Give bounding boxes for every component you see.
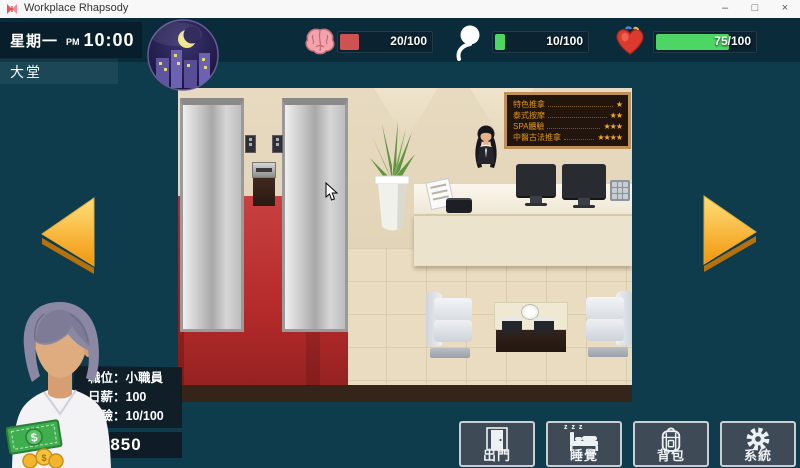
- coffee-table-base: [496, 330, 566, 352]
- desk-telephone: [610, 180, 630, 201]
- spirit-stat-bar: 10/100: [492, 31, 589, 53]
- spirit-stat-value: 10/100: [546, 34, 583, 48]
- bed-icon: [568, 431, 600, 451]
- menu-item: SPA體驗 ★★★: [513, 121, 622, 132]
- backpack-button[interactable]: 背包: [633, 421, 709, 467]
- location-box: 大堂: [0, 59, 118, 84]
- star-rating: ★★★: [603, 122, 622, 132]
- door-icon: [484, 426, 510, 452]
- clock-label: 10:00: [84, 30, 135, 51]
- svg-text:$: $: [41, 453, 46, 463]
- maximize-button[interactable]: □: [740, 0, 770, 18]
- money-icon: $ $: [6, 418, 70, 468]
- lobby-scene: 特色推拿 ★ 泰式按摩 ★★ SPA體驗 ★★★ 中醫古法推拿 ★★★★: [178, 88, 632, 402]
- minimize-button[interactable]: –: [710, 0, 740, 18]
- star-rating: ★: [616, 100, 622, 110]
- trash-bin-icon: [252, 162, 276, 178]
- go-out-button[interactable]: 出門: [459, 421, 535, 467]
- gear-icon: [745, 426, 771, 452]
- brain-stat-fill: [340, 34, 359, 50]
- trash-bin: [253, 178, 275, 206]
- close-button[interactable]: ×: [770, 0, 800, 18]
- brain-stat-bar: 20/100: [337, 31, 433, 53]
- window-titlebar: Workplace Rhapsody – □ ×: [0, 0, 800, 19]
- desk-monitor: [516, 164, 556, 198]
- floor-baseboard: [178, 385, 632, 402]
- brain-stat-value: 20/100: [390, 34, 427, 48]
- tissue-tray: [534, 318, 554, 333]
- spirit-stat-fill: [495, 34, 505, 50]
- heart-icon: [613, 26, 647, 56]
- menu-item: 特色推拿 ★: [513, 99, 622, 110]
- health-stat-value: 75/100: [714, 34, 751, 48]
- brain-icon: [302, 26, 338, 56]
- game-window: Workplace Rhapsody – □ × 星期一 PM 10:00 大堂: [0, 0, 800, 468]
- service-menu-board: 特色推拿 ★ 泰式按摩 ★★ SPA體驗 ★★★ 中醫古法推拿 ★★★★: [504, 92, 631, 149]
- window-title: Workplace Rhapsody: [24, 2, 128, 14]
- nav-left-arrow[interactable]: [34, 196, 96, 276]
- desk-tray: [446, 198, 472, 213]
- spirit-icon: [450, 24, 482, 62]
- menu-item: 中醫古法推拿 ★★★★: [513, 132, 622, 143]
- app-butterfly-icon: [6, 3, 18, 15]
- elevator-left[interactable]: [180, 98, 244, 332]
- elevator-call-panel[interactable]: [272, 135, 283, 153]
- armchair-right: [584, 291, 632, 357]
- mouse-cursor: [325, 182, 339, 202]
- nav-right-arrow[interactable]: [702, 194, 764, 274]
- health-stat-bar: 75/100: [653, 31, 757, 53]
- potted-plant: [368, 118, 416, 236]
- desk-monitor: [562, 164, 606, 200]
- location-label: 大堂: [10, 62, 42, 82]
- night-moon-icon: [146, 18, 220, 92]
- sleep-button[interactable]: z z z 睡覺: [546, 421, 622, 467]
- day-label: 星期一: [10, 30, 58, 51]
- receptionist[interactable]: [470, 124, 502, 186]
- meridiem-label: PM: [66, 37, 80, 47]
- tissue-tray: [502, 318, 522, 333]
- menu-item: 泰式按摩 ★★: [513, 110, 622, 121]
- backpack-icon: [658, 426, 684, 453]
- system-button[interactable]: 系統: [720, 421, 796, 467]
- time-panel: 星期一 PM 10:00: [0, 22, 142, 58]
- armchair-left: [426, 292, 474, 358]
- elevator-right[interactable]: [282, 98, 348, 332]
- star-rating: ★★: [610, 111, 622, 121]
- reception-counter[interactable]: [414, 214, 632, 266]
- zzz-marks: z z z: [564, 424, 583, 431]
- elevator-call-panel[interactable]: [245, 135, 256, 153]
- star-rating: ★★★★: [597, 133, 622, 143]
